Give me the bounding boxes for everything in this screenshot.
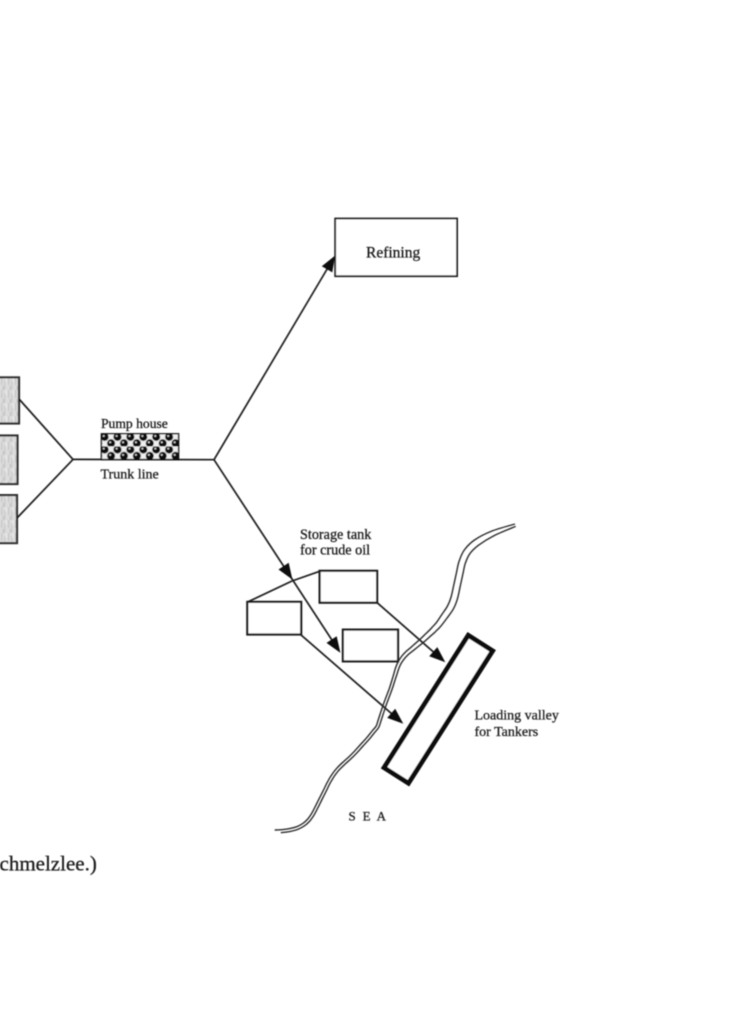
svg-text:Storage tank: Storage tank [300,527,372,543]
svg-text:for Tankers: for Tankers [475,725,539,740]
svg-text:Refining: Refining [366,244,420,261]
svg-text:Trunk line: Trunk line [101,468,159,483]
svg-text:Pump house: Pump house [101,416,168,431]
svg-text:S E A: S E A [349,809,388,824]
svg-text:Loading valley: Loading valley [475,709,559,724]
svg-text:chmelzlee.): chmelzlee.) [0,852,97,876]
svg-text:for crude oil: for crude oil [300,543,370,559]
